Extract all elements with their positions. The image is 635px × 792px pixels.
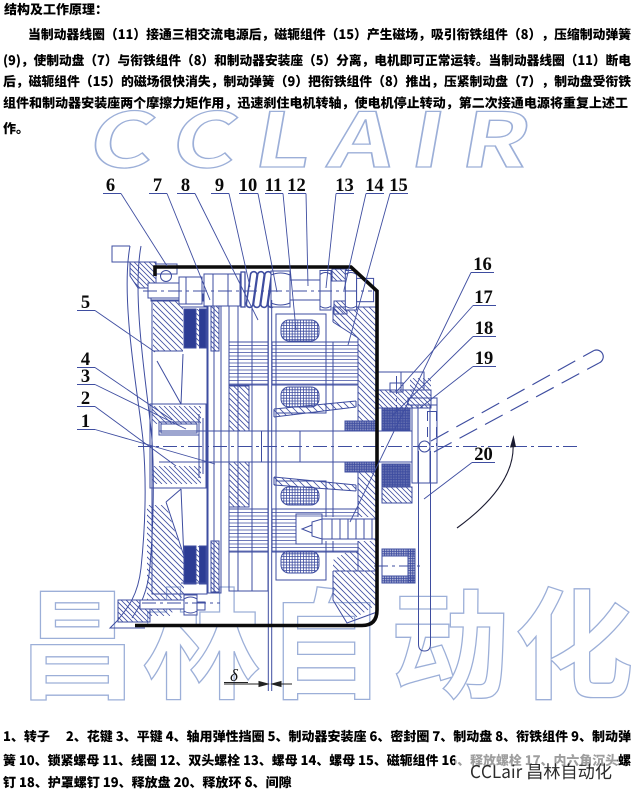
svg-text:6: 6 — [106, 176, 115, 196]
svg-text:14: 14 — [365, 176, 384, 196]
svg-text:11: 11 — [265, 176, 282, 196]
svg-text:13: 13 — [335, 176, 354, 196]
svg-text:9: 9 — [215, 176, 224, 196]
svg-text:15: 15 — [389, 176, 408, 196]
svg-text:17: 17 — [474, 288, 493, 308]
svg-text:16: 16 — [473, 255, 492, 275]
svg-text:10: 10 — [239, 176, 258, 196]
svg-text:8: 8 — [181, 176, 190, 196]
svg-text:12: 12 — [287, 176, 306, 196]
svg-text:1: 1 — [81, 412, 90, 432]
svg-text:δ: δ — [230, 666, 239, 685]
svg-text:2: 2 — [81, 389, 90, 409]
svg-text:3: 3 — [81, 367, 90, 387]
svg-text:20: 20 — [474, 445, 493, 465]
svg-text:19: 19 — [475, 349, 494, 369]
svg-text:5: 5 — [81, 293, 90, 313]
svg-text:7: 7 — [153, 176, 162, 196]
svg-text:18: 18 — [475, 319, 494, 339]
